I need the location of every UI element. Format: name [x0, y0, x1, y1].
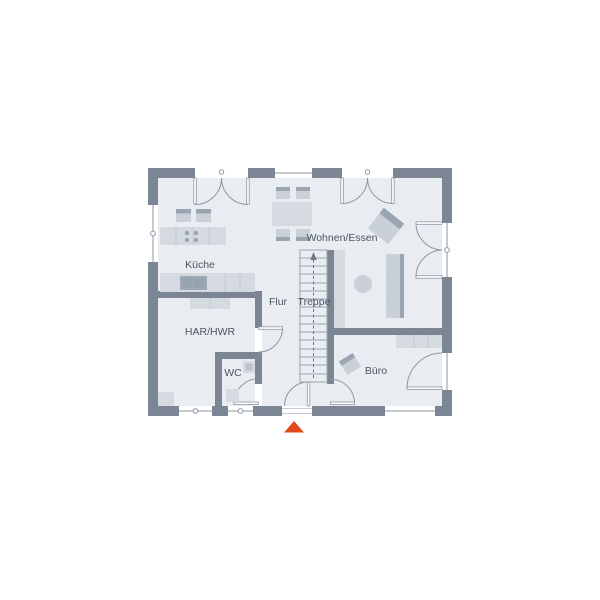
room-label-flur: Flur	[269, 296, 288, 308]
kitchen-counter	[160, 273, 255, 292]
sofa	[386, 254, 404, 318]
wall-kitchen-har	[158, 291, 262, 298]
kitchen-sink	[180, 276, 207, 290]
room-label-treppe: Treppe	[298, 296, 331, 308]
wc-sink	[243, 361, 255, 373]
window-bottom-office	[385, 406, 435, 416]
wall-stairs	[327, 250, 334, 384]
desk	[396, 335, 442, 348]
dining-table	[272, 202, 312, 226]
wall-wc-top	[215, 352, 262, 359]
window-bottom-wc	[228, 406, 253, 416]
bar-stool	[176, 209, 191, 222]
room-label-har-hwr: HAR/HWR	[185, 326, 236, 338]
room-label-wohnen-essen: Wohnen/Essen	[306, 232, 377, 244]
floor-plan: Küche Wohnen/Essen Flur Treppe HAR/HWR W…	[0, 0, 600, 600]
window-top-dining	[275, 168, 312, 178]
wall-living-office	[327, 328, 442, 335]
wc-toilet	[226, 389, 239, 402]
dining-chair	[276, 229, 290, 241]
wall-har-hall	[255, 291, 262, 328]
dining-chair	[276, 187, 290, 199]
entrance-marker-triangle-icon	[284, 421, 304, 433]
side-table	[354, 275, 372, 293]
room-label-wc: WC	[224, 367, 242, 379]
shelf-stairs-side	[334, 250, 345, 328]
floor-plan-page: Küche Wohnen/Essen Flur Treppe HAR/HWR W…	[0, 0, 600, 600]
washer-dryer	[190, 298, 230, 309]
room-label-kueche: Küche	[185, 259, 215, 271]
bar-stool	[196, 209, 211, 222]
room-label-buero: Büro	[365, 365, 387, 377]
dining-chair	[296, 187, 310, 199]
wall-wc-right	[255, 359, 262, 384]
kitchen-island	[160, 227, 226, 245]
window-bottom-har	[179, 406, 212, 416]
window-left-kitchen	[148, 205, 158, 262]
staircase	[300, 250, 327, 382]
wall-wc-left	[215, 352, 222, 406]
storage-box	[158, 392, 174, 406]
